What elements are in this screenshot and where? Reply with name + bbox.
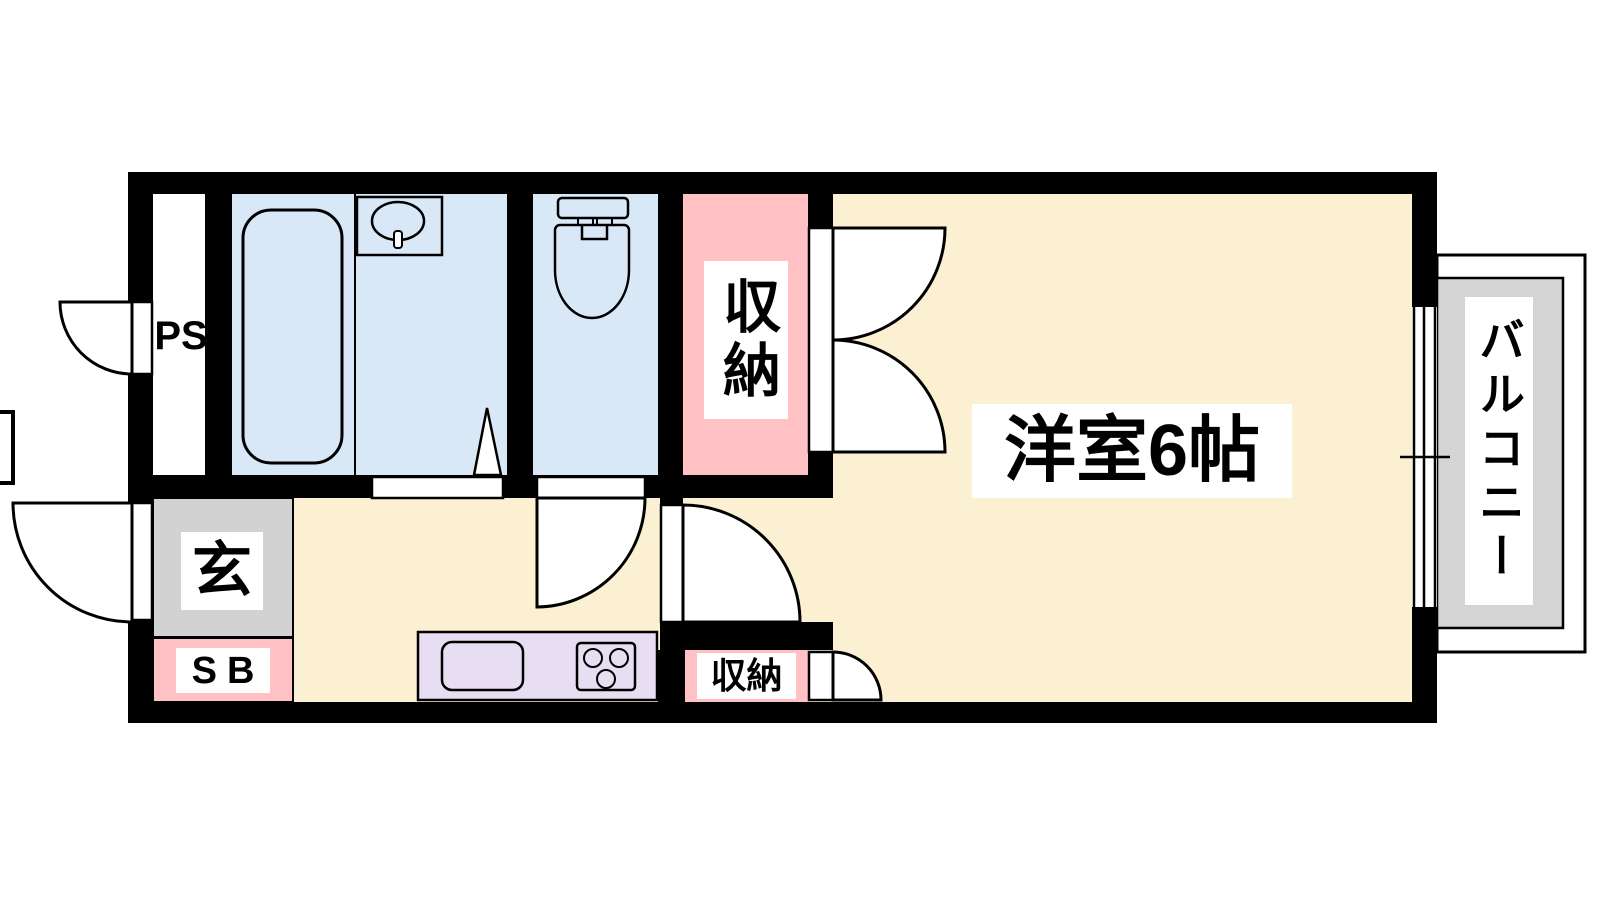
wall-top — [128, 172, 1437, 194]
entry-door-swing — [13, 503, 132, 622]
closet-top-doorway — [809, 228, 833, 452]
wall-toilet-closet — [658, 194, 683, 498]
closet-bottom-doorway — [809, 652, 833, 700]
main-room-doorway — [661, 505, 683, 622]
wall-left — [128, 172, 153, 723]
closet-bottom-label: 収納 — [697, 653, 796, 699]
wall-bath-toilet — [507, 194, 533, 498]
shoe-box-label: SB — [176, 648, 270, 693]
wall-above-closet-bottom — [660, 622, 833, 650]
bath-sink-tap — [394, 231, 402, 248]
bathroom-floor — [232, 194, 507, 477]
wall-left-of-closet-bottom — [658, 650, 685, 702]
floor-plan: PS 玄 SB 収納 収納 洋室6帖 バルコニー — [0, 0, 1600, 900]
toilet-doorway — [537, 477, 645, 498]
entry-label: 玄 — [181, 532, 263, 610]
wall-bottom — [128, 702, 1437, 723]
washroom-doorway — [372, 477, 503, 498]
toilet-room-floor — [533, 194, 658, 477]
ps-label: PS — [152, 312, 210, 360]
balcony-label: バルコニー — [1465, 297, 1533, 605]
meter-box-door-leaf — [0, 412, 13, 483]
main-room-label: 洋室6帖 — [972, 404, 1292, 498]
closet-top-label: 収納 — [704, 261, 788, 419]
ps-door-swing — [60, 302, 132, 374]
floor-plan-canvas — [0, 0, 1600, 900]
kitchen — [418, 632, 657, 700]
